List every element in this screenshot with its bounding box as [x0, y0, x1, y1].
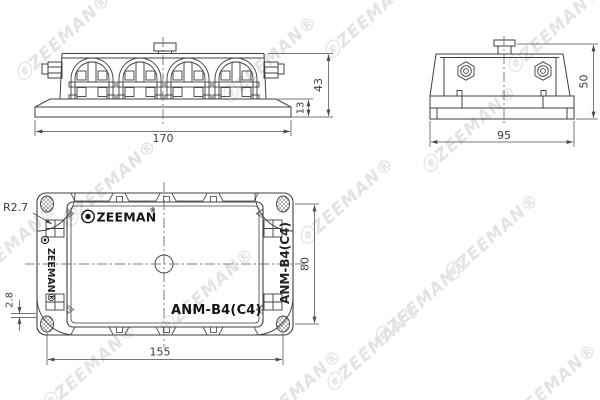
mounting-hole: [41, 196, 54, 212]
side-top-knob: [494, 40, 515, 54]
dim-front-width: 170: [153, 132, 174, 145]
hex-bolt-left: [458, 62, 474, 80]
front-top-knob: [154, 43, 176, 54]
side-view: [430, 36, 574, 126]
brand-logo-text: ZEEMAN: [97, 210, 157, 225]
left-edge-badge-icon: [41, 236, 48, 243]
brand-reg-mark: ®: [150, 206, 157, 214]
dim-front-base-height: 13: [296, 102, 307, 115]
dim-corner-radius: R2.7: [3, 201, 28, 214]
front-view: [35, 37, 291, 124]
fuse-arches: [69, 58, 259, 99]
technical-drawing-page: ⓔZEEMAN®ⓔZEEMAN®ⓔZEEMAN®ⓔZEEMAN®ⓔZEEMAN®…: [0, 0, 600, 400]
dim-side-width: 95: [497, 129, 511, 142]
dim-front-height: 43: [312, 78, 325, 92]
mounting-hole: [277, 316, 290, 332]
top-view: [25, 182, 306, 347]
edge-tabs-bottom: [71, 327, 258, 335]
left-edge-brand-label: ZEEMAN®: [45, 248, 56, 302]
dim-top-height: 80: [299, 257, 312, 271]
dim-side-height: 50: [578, 75, 591, 89]
side-base: [430, 96, 574, 119]
drawing-svg: 170 43 13: [0, 0, 600, 400]
front-left-bolt: [42, 62, 62, 78]
brand-badge-icon: [82, 210, 94, 222]
dim-top-width: 155: [150, 346, 171, 359]
model-label: ANM-B4(C4): [171, 303, 262, 318]
dim-top-edge: 2.8: [5, 292, 16, 308]
hex-bolt-right: [535, 62, 551, 80]
corner-wedges: [67, 209, 263, 314]
mounting-hole: [277, 196, 290, 212]
front-right-bolt: [264, 62, 284, 78]
edge-tabs-top: [71, 194, 258, 203]
right-edge-model-label: ANM-B4(C4): [278, 222, 292, 304]
side-body: [430, 54, 570, 96]
mounting-hole: [41, 316, 54, 332]
